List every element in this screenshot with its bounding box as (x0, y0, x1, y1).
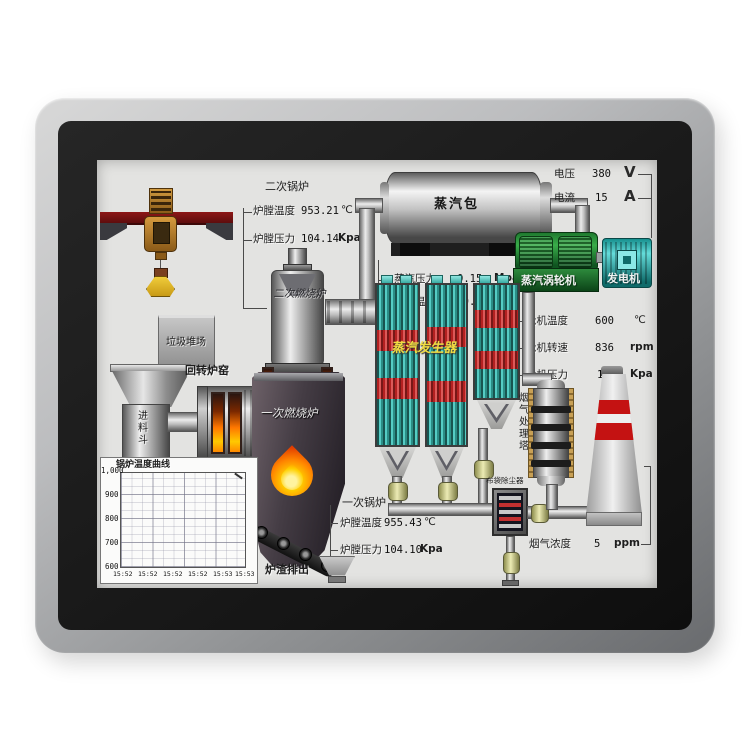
x-tick: 15:52 (163, 571, 183, 578)
furnace-temp-value: 953.21 (301, 205, 339, 217)
photo-canvas: 二次锅炉 炉膛温度 953.21 ℃ 炉膛压力 104.14 Kpa 蒸汽包 蒸… (0, 0, 750, 750)
turbine-speed-unit: rpm (630, 341, 654, 353)
treatment-tower-label: 烟气处理塔 (516, 392, 528, 452)
p-furnace-temp-unit: ℃ (424, 516, 436, 528)
primary-boiler-bracket (330, 505, 331, 560)
y-tick: 700 (105, 539, 119, 548)
primary-boiler-title: 一次锅炉 (342, 497, 386, 510)
voltage-label: 电压 (554, 168, 575, 180)
chimney-body (586, 374, 642, 514)
x-tick: 15:52 (113, 571, 133, 578)
x-tick: 15:53 (235, 571, 255, 578)
tower-band (531, 424, 571, 431)
x-tick: 15:52 (188, 571, 208, 578)
sight-glass (438, 482, 458, 501)
tick (243, 240, 252, 241)
current-label: 电流 (554, 192, 575, 204)
crane-hoist-tab (155, 252, 167, 260)
chart-title: 锅炉温度曲线 (116, 460, 170, 470)
pipe-drum-down (359, 208, 375, 303)
furnace-press-label: 炉膛压力 (253, 233, 295, 245)
y-tick: 900 (105, 491, 119, 500)
bag-filter-bar (499, 510, 521, 514)
trend-chart: 锅炉温度曲线 1,000 900 800 700 600 15:52 15:52… (100, 457, 258, 584)
bag-filter-drain-cap (502, 580, 519, 586)
furnace-flame (269, 450, 315, 508)
turbine-section (519, 236, 553, 269)
tick (638, 198, 651, 199)
p-furnace-temp-label: 炉膛温度 (340, 517, 382, 529)
primary-furnace-label: 一次燃烧炉 (260, 407, 320, 420)
hmi-touchscreen[interactable]: 二次锅炉 炉膛温度 953.21 ℃ 炉膛压力 104.14 Kpa 蒸汽包 蒸… (97, 160, 657, 588)
pipe-segmented-ridges (327, 301, 375, 323)
chimney-base (586, 512, 642, 526)
p-furnace-press-value: 104.10 (384, 544, 422, 556)
furnace-temp-label: 炉膛温度 (253, 205, 295, 217)
tick (330, 550, 338, 551)
crane-trolley-stripes (151, 191, 171, 211)
kiln-end-ring (197, 386, 208, 460)
p-furnace-press-label: 炉膛压力 (340, 544, 382, 556)
generator-label: 发电机 (607, 273, 640, 286)
conveyor-wheel (299, 548, 312, 561)
primary-furnace-collar (254, 373, 343, 381)
chimney-white-band (586, 414, 642, 423)
collector-pipe (388, 503, 493, 516)
tube-bank-2 (425, 283, 468, 447)
furnace-press-value: 104.14 (301, 233, 339, 245)
power-bracket (651, 174, 652, 238)
steam-drum-label: 蒸汽包 (434, 198, 479, 213)
generator-hub-core (623, 256, 631, 264)
furnace-temp-unit: ℃ (341, 204, 353, 216)
turbine-section (558, 236, 592, 269)
turbine-temp-value: 600 (595, 315, 614, 327)
bag-filter-bar (499, 524, 521, 528)
tube-bank-3 (473, 283, 520, 400)
tick (638, 174, 651, 175)
trace-start-mark (234, 473, 243, 480)
kiln-fire-window (211, 392, 225, 454)
steam-drum-foot (400, 243, 430, 256)
tick (330, 523, 338, 524)
tick (641, 544, 650, 545)
feed-hopper-funnel (112, 371, 190, 407)
tick (243, 212, 252, 213)
x-tick: 15:52 (138, 571, 158, 578)
p-furnace-press-unit: Kpa (420, 543, 443, 555)
bag-filter-label: 布袋除尘器 (486, 477, 524, 486)
bag-filter-bar (499, 503, 521, 507)
turbine-label: 蒸汽涡轮机 (521, 275, 576, 288)
sight-glass (388, 482, 408, 501)
voltage-unit: V (624, 164, 636, 181)
crane-support-left (100, 223, 127, 240)
flue-gas-label: 烟气浓度 (529, 538, 571, 550)
voltage-value: 380 (592, 168, 611, 180)
tower-band (531, 406, 571, 413)
y-tick: 1,000 (101, 467, 124, 476)
furnace-press-unit: Kpa (338, 232, 361, 244)
slag-hopper-base (328, 576, 346, 583)
feed-hopper-label: 进料斗 (135, 410, 147, 446)
sight-glass (503, 552, 520, 574)
conveyor-wheel (277, 537, 290, 550)
chimney-red-band (586, 423, 642, 440)
tower-band (531, 442, 571, 449)
grab-bucket (146, 276, 175, 297)
current-unit: A (624, 188, 636, 205)
crane-hoist-window (153, 222, 170, 244)
p-furnace-temp-value: 955.43 (384, 517, 422, 529)
feed-hopper-rim (110, 364, 191, 372)
current-value: 15 (595, 192, 608, 204)
tick (243, 308, 267, 309)
turbine-temp-unit: ℃ (634, 314, 646, 326)
tower-drain (546, 484, 558, 510)
chimney-red-band (586, 400, 642, 414)
secondary-furnace-label: 二次燃烧炉 (273, 288, 328, 300)
waste-yard-label: 垃圾堆场 (166, 337, 206, 349)
turbine-press-unit: Kpa (630, 368, 653, 380)
y-tick: 800 (105, 515, 119, 524)
bag-filter-bar (499, 496, 521, 500)
kiln-feed-connector (167, 412, 201, 432)
flue-gas-bracket (650, 466, 651, 545)
bag-filter-bar (499, 517, 521, 521)
pipe-to-tower-vert (522, 292, 535, 376)
rotary-kiln-label: 回转炉窑 (185, 365, 229, 378)
steam-generator-label: 蒸汽发生器 (391, 342, 458, 357)
secondary-boiler-title: 二次锅炉 (265, 181, 309, 194)
kiln-fire-window (228, 392, 242, 454)
tower-band (531, 460, 571, 467)
slag-discharge-label: 炉渣排出 (265, 564, 309, 577)
tick (644, 466, 651, 467)
chart-plot (120, 472, 246, 568)
crane-support-right (206, 223, 233, 240)
x-tick: 15:53 (213, 571, 233, 578)
flue-gas-value: 5 (594, 538, 600, 550)
turbine-speed-value: 836 (595, 342, 614, 354)
tube-bank-1 (375, 283, 420, 447)
secondary-boiler-bracket (243, 208, 244, 309)
flue-gas-unit: ppm (614, 537, 640, 549)
